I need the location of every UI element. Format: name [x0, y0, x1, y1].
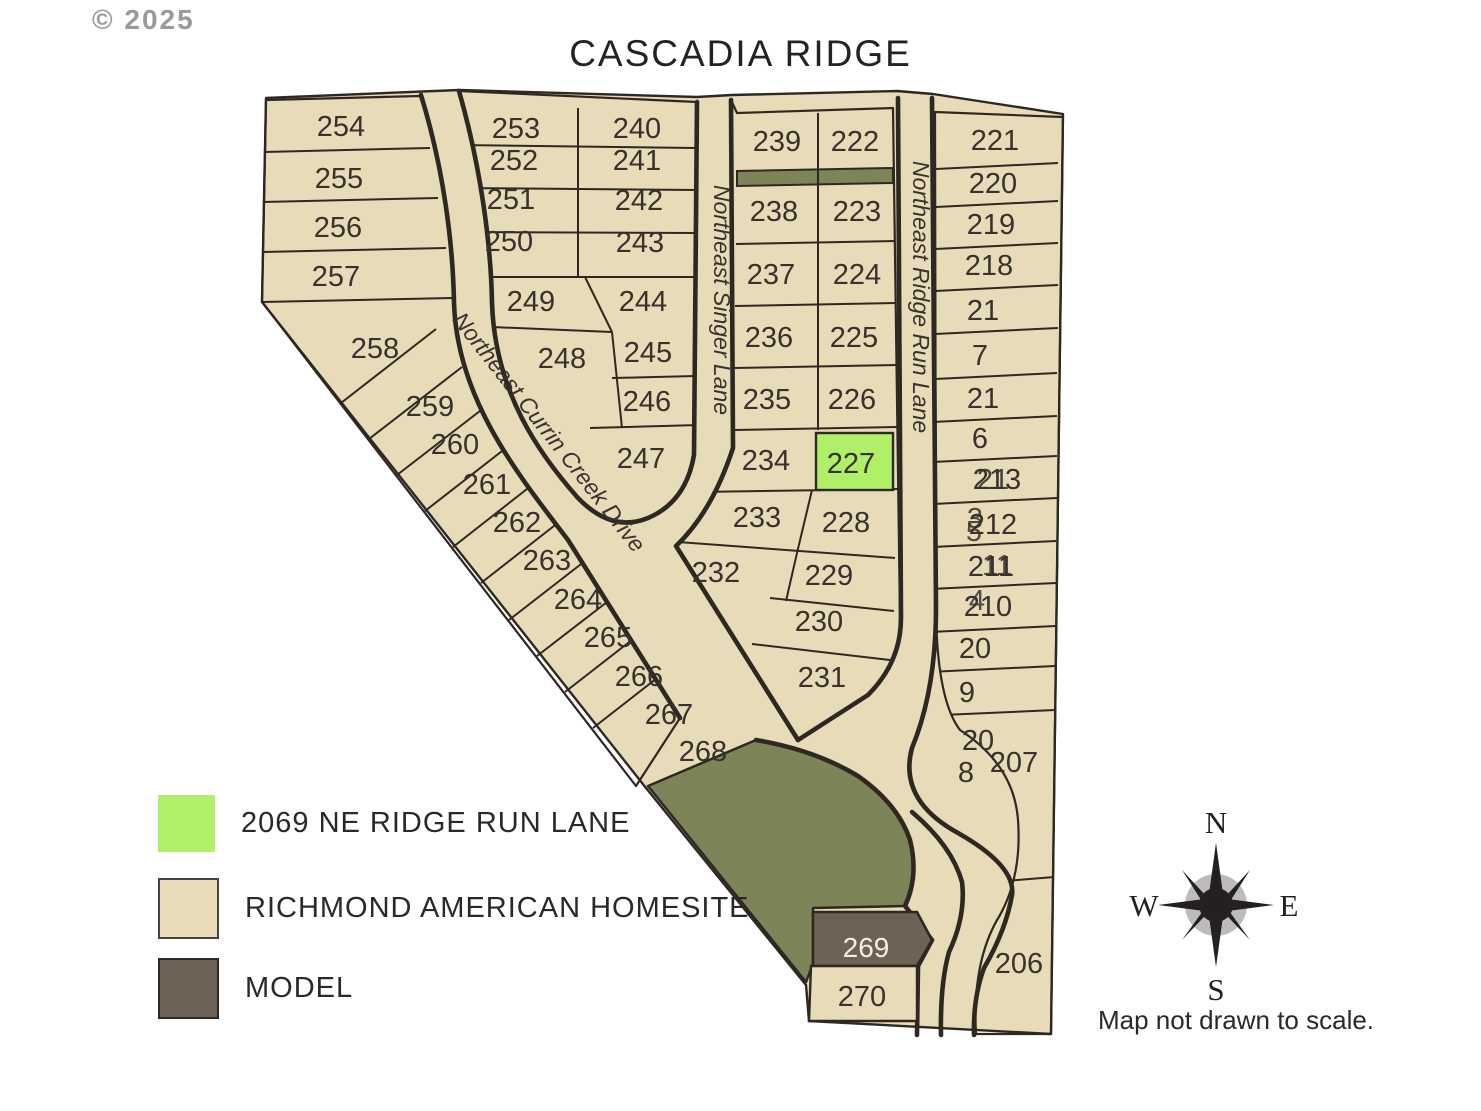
lot-label-232: 232 — [692, 557, 740, 589]
lot-label-219: 219 — [967, 209, 1015, 241]
lot-label-237: 237 — [747, 259, 795, 291]
street-label-ridge-run-lane: Northeast Ridge Run Lane — [908, 161, 934, 433]
lot-label-234: 234 — [742, 445, 790, 477]
legend-item-homesite: RICHMOND AMERICAN HOMESITE — [158, 878, 750, 939]
lot-label-233: 233 — [733, 502, 781, 534]
compass-west-label: W — [1129, 888, 1159, 923]
lot-label-6: 6 — [972, 423, 988, 455]
lot-label-257: 257 — [312, 261, 360, 293]
lot-label-264: 264 — [554, 584, 602, 616]
lot-label-269-model: 269 — [843, 932, 890, 963]
lot-label-228: 228 — [822, 507, 870, 539]
compass-north-label: N — [1205, 810, 1227, 840]
lot-label-238: 238 — [750, 196, 798, 228]
lot-label-207: 207 — [990, 747, 1038, 779]
legend-item-highlight: 2069 NE RIDGE RUN LANE — [158, 795, 630, 852]
lot-label-265: 265 — [584, 622, 632, 654]
lot-label-263: 263 — [523, 545, 571, 577]
lot-label-220: 220 — [969, 168, 1017, 200]
lot-label-256: 256 — [314, 212, 362, 244]
lot-label-245: 245 — [624, 337, 672, 369]
lot-label-236: 236 — [745, 322, 793, 354]
lot-label-239: 239 — [753, 126, 801, 158]
lot-label-21: 21 — [977, 464, 1009, 496]
lot-label-224: 224 — [833, 259, 881, 291]
lot-label-235: 235 — [743, 384, 791, 416]
lot-label-21: 21 — [967, 383, 999, 415]
lot-label-230: 230 — [795, 606, 843, 638]
legend-label-highlight: 2069 NE RIDGE RUN LANE — [241, 807, 630, 840]
lot-label-229: 229 — [805, 560, 853, 592]
lot-label-260: 260 — [431, 429, 479, 461]
lot-label-249: 249 — [507, 286, 555, 318]
lot-label-223: 223 — [833, 196, 881, 228]
lot-label-252: 252 — [490, 145, 538, 177]
lot-label-262: 262 — [493, 507, 541, 539]
compass-star — [1158, 843, 1274, 967]
legend-swatch-model — [158, 958, 219, 1019]
lot-label-267: 267 — [645, 699, 693, 731]
lot-label-254: 254 — [317, 111, 365, 143]
lot-label-5: 5 — [966, 516, 982, 548]
lot-label-253: 253 — [492, 113, 540, 145]
legend-swatch-homesite — [158, 878, 219, 939]
lot-label-261: 261 — [463, 469, 511, 501]
legend-label-model: MODEL — [245, 972, 353, 1005]
lot-label-8: 8 — [958, 757, 974, 789]
lot-label-251: 251 — [487, 184, 535, 216]
map-scale-note: Map not drawn to scale. — [1098, 1005, 1374, 1036]
lot-label-206: 206 — [995, 948, 1043, 980]
lot-label-231: 231 — [798, 662, 846, 694]
lot-label-9: 9 — [959, 677, 975, 709]
legend-item-model: MODEL — [158, 958, 353, 1019]
compass-east-label: E — [1280, 888, 1299, 923]
lot-label-250: 250 — [485, 226, 533, 258]
lot-label-266: 266 — [615, 661, 663, 693]
lot-label-259: 259 — [406, 391, 454, 423]
lot-label-218: 218 — [965, 250, 1013, 282]
lot-label-258: 258 — [351, 333, 399, 365]
legend-swatch-highlight — [158, 795, 215, 852]
lot-label-270: 270 — [838, 981, 886, 1013]
lot-label-4: 4 — [969, 585, 985, 617]
lot-label-248: 248 — [538, 343, 586, 375]
lot-label-7: 7 — [972, 340, 988, 372]
lot-label-240: 240 — [613, 113, 661, 145]
lot-label-243: 243 — [616, 227, 664, 259]
lot-label-225: 225 — [830, 322, 878, 354]
lot-label-241: 241 — [613, 145, 661, 177]
lot-label-247: 247 — [617, 443, 665, 475]
lot-label-20: 20 — [959, 633, 991, 665]
compass-rose: N S E W — [1120, 810, 1320, 1010]
compass-south-label: S — [1207, 972, 1224, 1007]
lot-label-221: 221 — [971, 125, 1019, 157]
landscape-strip — [737, 168, 893, 186]
legend-label-homesite: RICHMOND AMERICAN HOMESITE — [245, 892, 750, 925]
lot-label-227: 227 — [827, 448, 875, 480]
lot-label-222: 222 — [831, 126, 879, 158]
lot-label-268: 268 — [679, 736, 727, 768]
lot-label-244: 244 — [619, 286, 667, 318]
lot-label-242: 242 — [615, 185, 663, 217]
lot-label-21: 21 — [967, 295, 999, 327]
lot-label-246: 246 — [623, 386, 671, 418]
lot-label-255: 255 — [315, 163, 363, 195]
lot-label-11: 11 — [982, 550, 1012, 582]
street-label-singer-lane: Northeast Singer Lane — [709, 185, 735, 415]
lot-label-226: 226 — [828, 384, 876, 416]
